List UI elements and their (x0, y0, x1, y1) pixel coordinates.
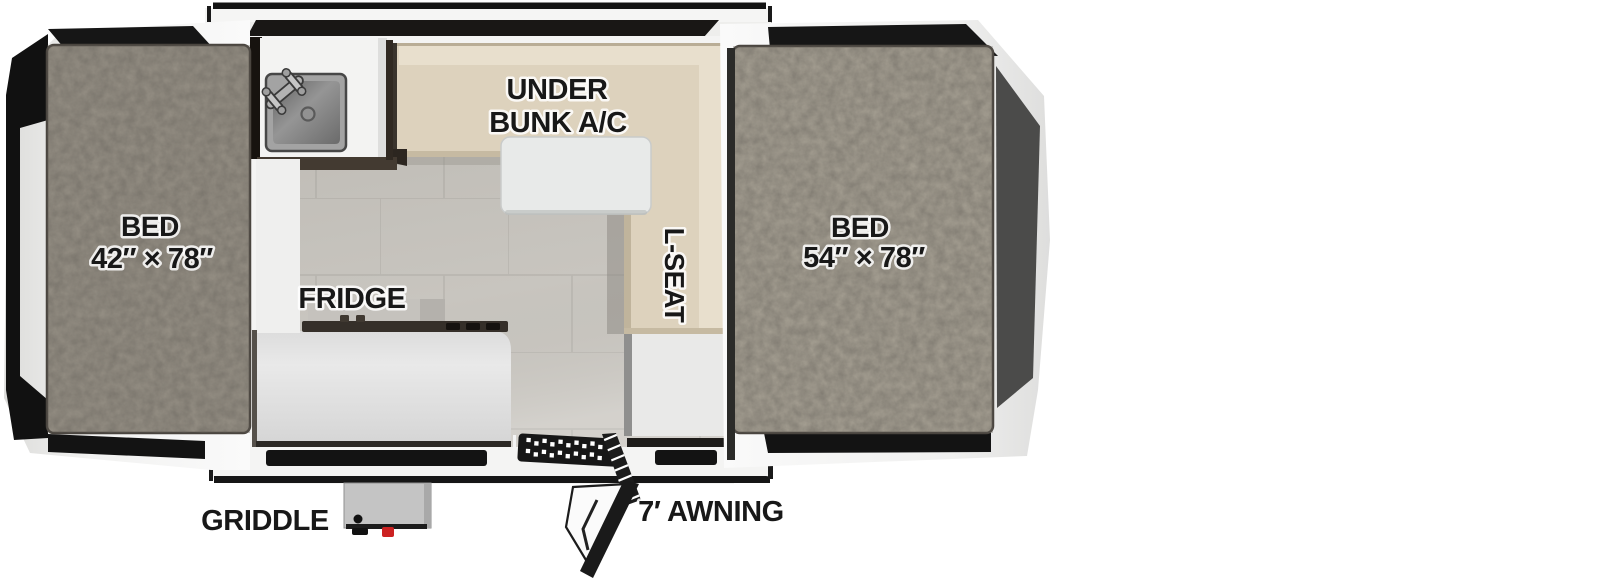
svg-text:54″ × 78″: 54″ × 78″ (803, 242, 925, 274)
svg-text:BED: BED (121, 211, 179, 242)
svg-text:BED: BED (831, 212, 889, 243)
svg-text:L-SEAT: L-SEAT (659, 228, 690, 323)
svg-text:BUNK A/C: BUNK A/C (489, 107, 627, 139)
svg-text:7′ AWNING: 7′ AWNING (638, 496, 784, 528)
svg-text:UNDER: UNDER (506, 74, 608, 106)
svg-text:GRIDDLE: GRIDDLE (201, 505, 329, 537)
svg-text:FRIDGE: FRIDGE (298, 283, 405, 315)
svg-text:42″ × 78″: 42″ × 78″ (91, 243, 213, 275)
